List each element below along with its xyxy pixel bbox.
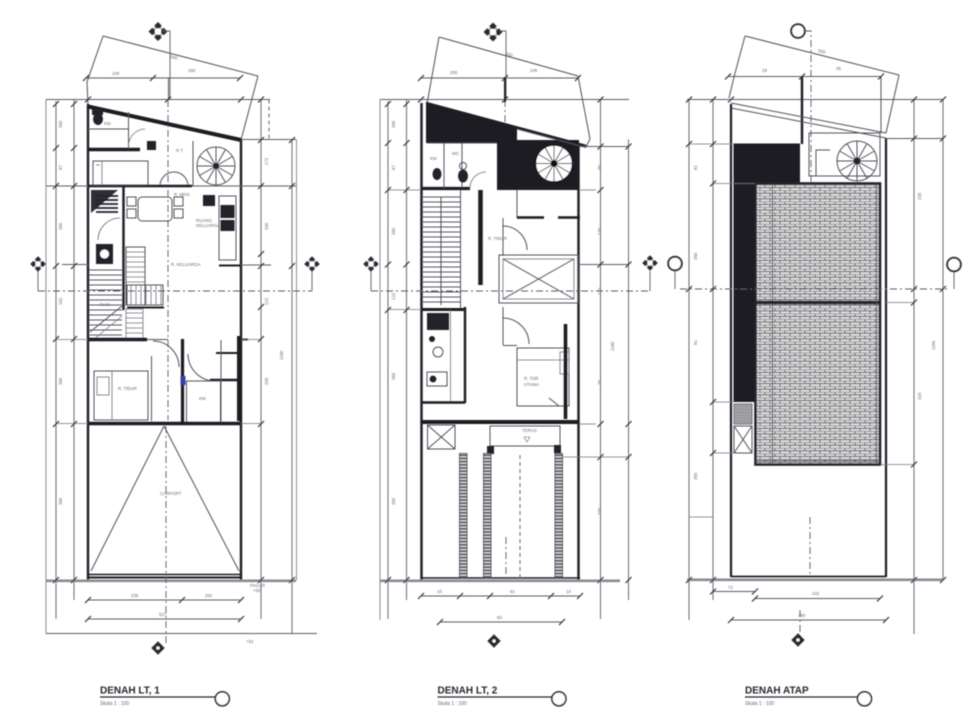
svg-text:+52: +52 <box>253 588 261 593</box>
svg-text:DENAH LT, 2: DENAH LT, 2 <box>438 686 498 697</box>
svg-text:CARPORT: CARPORT <box>160 491 182 496</box>
svg-text:R. TDR: R. TDR <box>524 376 539 381</box>
svg-text:Skala 1 : 100: Skala 1 : 100 <box>438 701 467 707</box>
svg-text:172: 172 <box>264 157 269 165</box>
svg-text:R. TIDUR: R. TIDUR <box>488 236 507 241</box>
svg-text:87: 87 <box>391 165 396 170</box>
svg-text:100: 100 <box>112 71 120 76</box>
svg-text:72: 72 <box>728 585 733 590</box>
svg-text:350: 350 <box>58 222 63 230</box>
svg-text:+52: +52 <box>246 639 254 644</box>
svg-text:92: 92 <box>510 589 515 594</box>
svg-text:35: 35 <box>836 66 841 71</box>
svg-text:291: 291 <box>205 593 213 598</box>
svg-text:350: 350 <box>391 372 396 380</box>
svg-text:330: 330 <box>917 192 922 200</box>
svg-text:334: 334 <box>917 392 922 400</box>
svg-text:245: 245 <box>530 68 538 73</box>
svg-text:R. TIDUR: R. TIDUR <box>118 386 137 391</box>
svg-text:WC: WC <box>452 151 459 156</box>
svg-text:R. KELUARGA: R. KELUARGA <box>171 262 201 267</box>
svg-text:236: 236 <box>131 593 139 598</box>
svg-text:122: 122 <box>264 297 269 305</box>
svg-text:TERAS: TERAS <box>522 428 537 433</box>
svg-text:35: 35 <box>597 380 602 385</box>
svg-text:350: 350 <box>391 120 396 128</box>
svg-text:29: 29 <box>762 68 767 73</box>
svg-text:81: 81 <box>693 165 698 170</box>
svg-text:330: 330 <box>264 377 269 385</box>
svg-text:432: 432 <box>812 591 820 596</box>
svg-text:10: 10 <box>437 589 442 594</box>
svg-text:330: 330 <box>597 507 602 515</box>
svg-text:60: 60 <box>497 615 502 620</box>
svg-text:350: 350 <box>693 252 698 260</box>
svg-text:Skala 1 : 100: Skala 1 : 100 <box>100 701 129 707</box>
svg-text:122: 122 <box>391 292 396 300</box>
svg-text:122: 122 <box>597 287 602 295</box>
svg-text:R. MKN: R. MKN <box>174 192 189 197</box>
svg-text:DENAH LT, 1: DENAH LT, 1 <box>100 686 160 697</box>
svg-text:1180: 1180 <box>610 341 615 351</box>
svg-text:527: 527 <box>159 612 167 617</box>
svg-text:1180: 1180 <box>279 350 284 360</box>
svg-text:1180: 1180 <box>931 340 936 350</box>
svg-text:350: 350 <box>58 497 63 505</box>
svg-text:330: 330 <box>264 222 269 230</box>
svg-text:KM: KM <box>199 396 206 401</box>
svg-text:KM: KM <box>430 156 437 161</box>
svg-text:87: 87 <box>58 165 63 170</box>
svg-text:350: 350 <box>391 497 396 505</box>
svg-text:350: 350 <box>58 377 63 385</box>
svg-text:350: 350 <box>693 472 698 480</box>
svg-text:480: 480 <box>798 613 806 618</box>
svg-text:NAIK: NAIK <box>100 302 110 307</box>
svg-text:UTAMA: UTAMA <box>524 382 539 387</box>
svg-text:130: 130 <box>597 227 602 235</box>
svg-text:10: 10 <box>566 589 571 594</box>
svg-text:Skala 1 : 100: Skala 1 : 100 <box>745 701 774 707</box>
svg-text:DENAH ATAP: DENAH ATAP <box>745 686 809 697</box>
svg-text:81: 81 <box>693 340 698 345</box>
svg-text:162: 162 <box>58 297 63 305</box>
svg-text:KELUARGA: KELUARGA <box>196 223 220 228</box>
svg-text:255: 255 <box>450 70 458 75</box>
svg-text:350: 350 <box>391 227 396 235</box>
svg-text:KM: KM <box>104 121 111 126</box>
svg-text:90: 90 <box>597 165 602 170</box>
svg-text:R.T: R.T <box>176 148 183 153</box>
svg-text:350: 350 <box>58 120 63 128</box>
svg-text:260: 260 <box>188 68 196 73</box>
